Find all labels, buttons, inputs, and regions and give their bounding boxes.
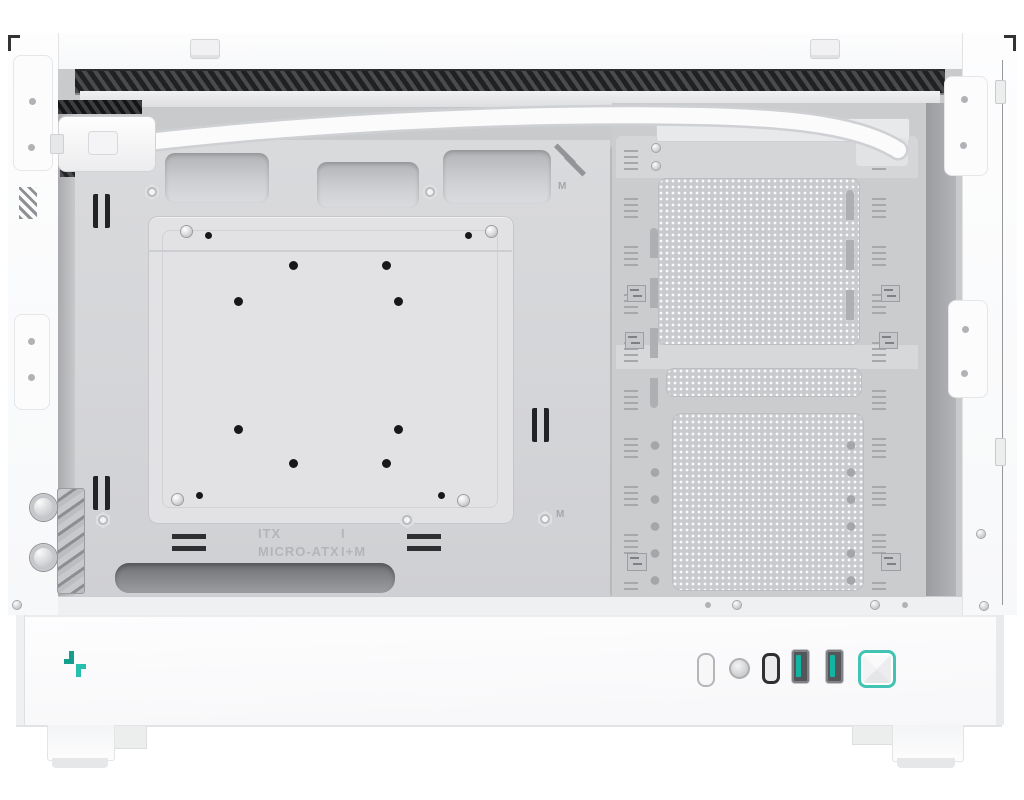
- front-panel-band: [16, 615, 1002, 727]
- usb-c-port: [762, 653, 780, 684]
- usb-a-port: [792, 650, 809, 683]
- case-foot-right: [892, 725, 964, 762]
- usb-a-connector-tab: [830, 655, 835, 677]
- power-button: [858, 650, 896, 688]
- ledge-hole: [705, 602, 711, 608]
- ledge-screw: [871, 601, 879, 609]
- ledge-screw: [733, 601, 741, 609]
- front-band-right-edge: [996, 615, 1004, 725]
- usb-a-port: [826, 650, 843, 683]
- reset-button: [729, 658, 750, 679]
- cable-connector-slot: [88, 131, 118, 155]
- case-foot-left: [47, 725, 115, 761]
- usb-a-connector-tab: [796, 655, 801, 677]
- deepcool-logo: [64, 651, 86, 677]
- product-photo-canvas: ITX I MICRO-ATX I+M M M: [0, 0, 1024, 800]
- ledge-hole: [902, 602, 908, 608]
- case-foot-left-pad: [52, 758, 108, 768]
- case-foot-rear-right: [852, 726, 896, 745]
- cable-connector-clip: [50, 134, 64, 154]
- front-band-left-edge: [16, 615, 25, 725]
- ledge-screw: [13, 601, 21, 609]
- ledge-screw: [980, 602, 988, 610]
- case-foot-rear-left: [113, 726, 147, 749]
- led-indicator-slot: [697, 653, 715, 687]
- case-foot-right-pad: [897, 758, 955, 768]
- shroud-top-ledge: [58, 596, 962, 616]
